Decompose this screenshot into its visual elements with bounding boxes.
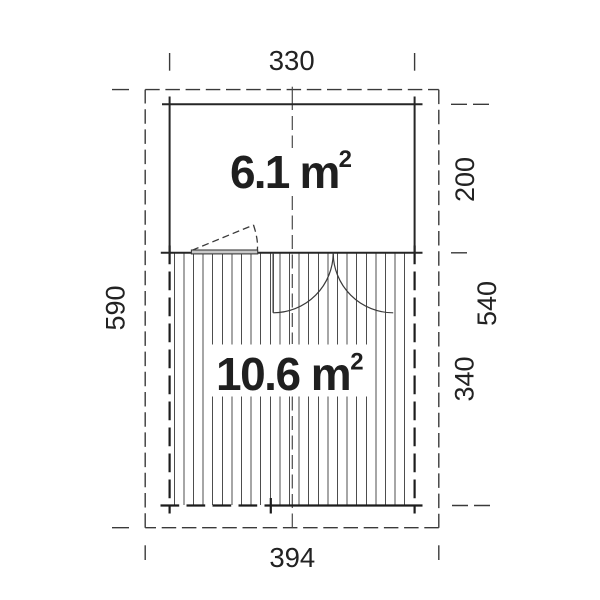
svg-text:540: 540	[472, 281, 502, 326]
svg-text:340: 340	[450, 356, 480, 401]
svg-text:590: 590	[101, 285, 131, 330]
svg-text:6.1 m2: 6.1 m2	[230, 146, 352, 198]
svg-text:394: 394	[269, 542, 315, 573]
svg-text:330: 330	[269, 45, 315, 76]
svg-text:10.6 m2: 10.6 m2	[216, 348, 364, 400]
svg-text:200: 200	[450, 157, 480, 202]
